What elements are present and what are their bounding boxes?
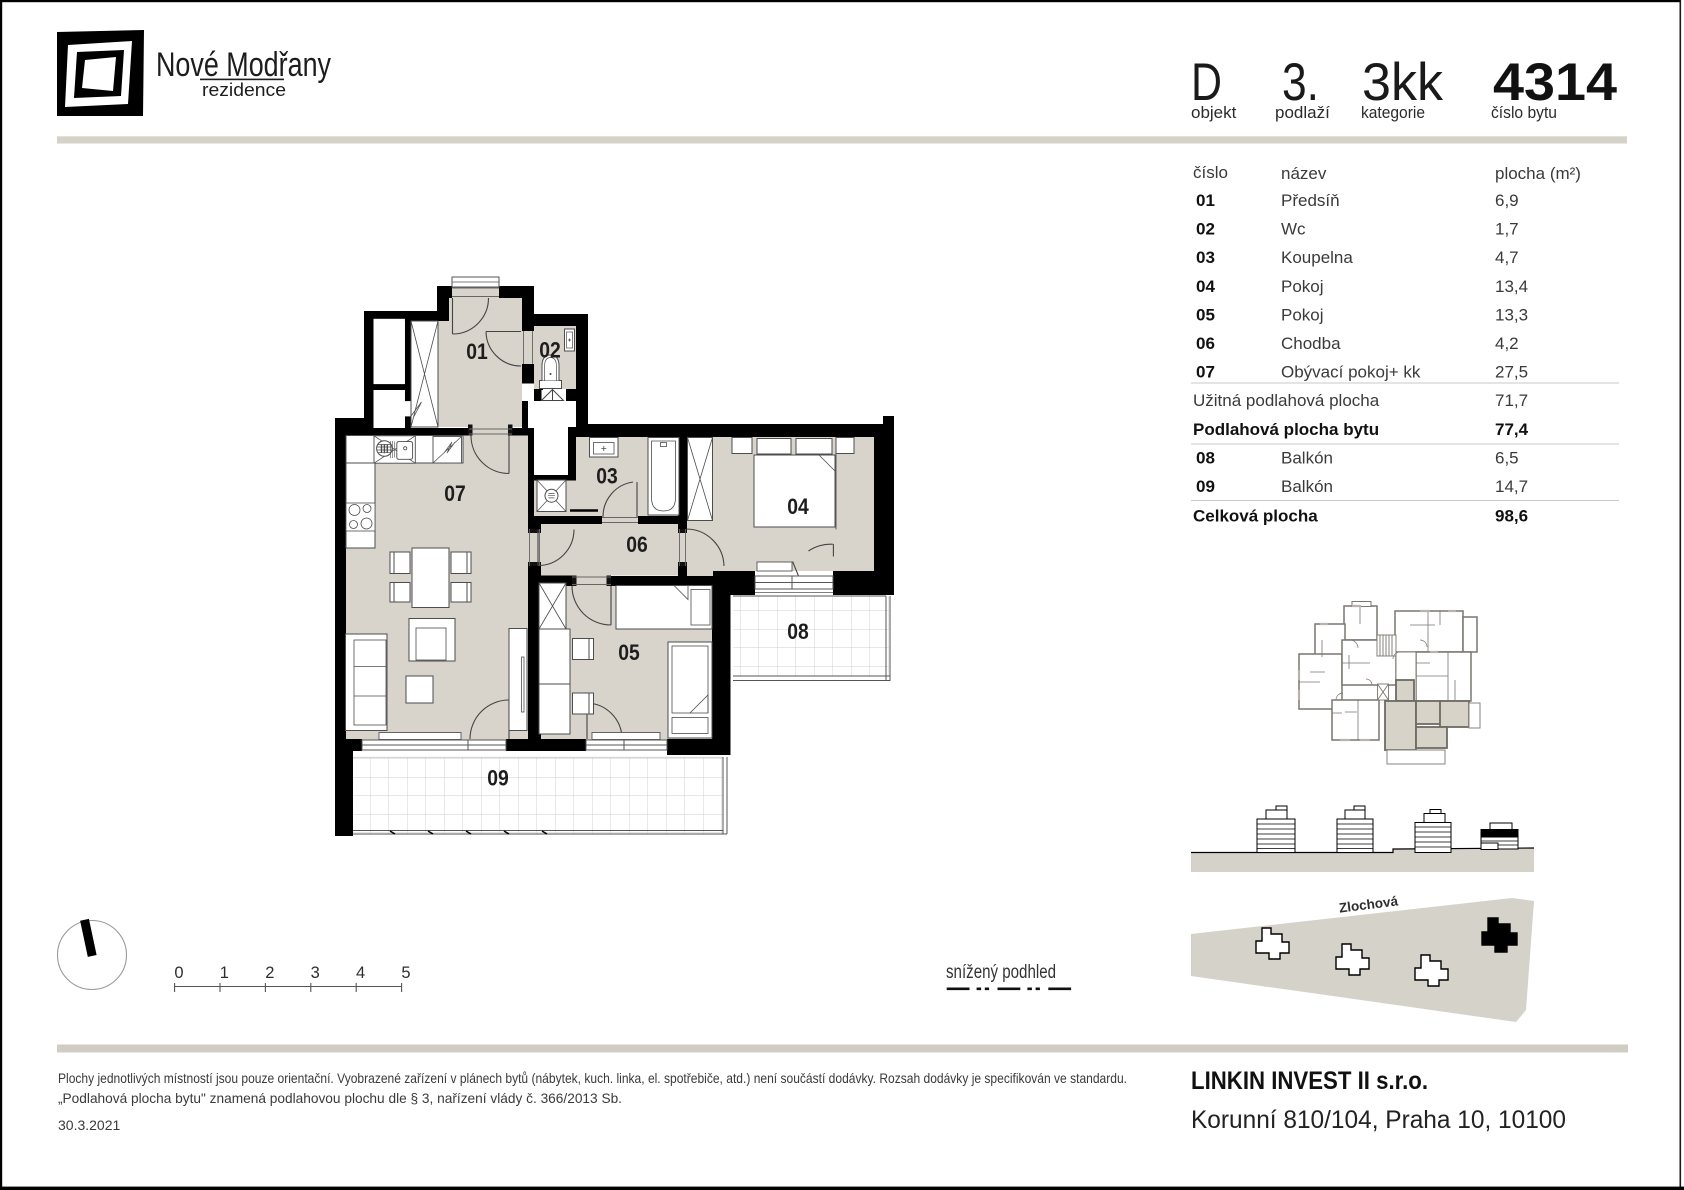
svg-text:04: 04 <box>1196 277 1215 296</box>
svg-text:1: 1 <box>220 964 229 982</box>
svg-text:5: 5 <box>401 964 410 982</box>
svg-text:Wc: Wc <box>1281 220 1306 239</box>
svg-text:„Podlahová plocha bytu" znamen: „Podlahová plocha bytu" znamená podlahov… <box>58 1090 622 1106</box>
svg-text:02: 02 <box>1196 220 1215 239</box>
svg-text:14,7: 14,7 <box>1495 477 1528 496</box>
svg-text:Pokoj: Pokoj <box>1281 277 1324 296</box>
svg-text:07: 07 <box>1196 363 1215 382</box>
svg-text:30.3.2021: 30.3.2021 <box>58 1117 120 1133</box>
svg-text:13,4: 13,4 <box>1495 277 1528 296</box>
svg-text:03: 03 <box>596 464 618 489</box>
svg-text:08: 08 <box>1196 448 1215 467</box>
svg-text:Předsíň: Předsíň <box>1281 191 1340 210</box>
svg-text:05: 05 <box>1196 305 1215 324</box>
svg-text:Pokoj: Pokoj <box>1281 305 1324 324</box>
svg-text:09: 09 <box>487 766 509 791</box>
svg-text:13,3: 13,3 <box>1495 305 1528 324</box>
svg-text:Podlahová plocha bytu: Podlahová plocha bytu <box>1193 420 1379 439</box>
svg-text:Užitná podlahová plocha: Užitná podlahová plocha <box>1193 391 1380 410</box>
svg-text:3: 3 <box>311 964 320 982</box>
svg-text:4: 4 <box>356 964 365 982</box>
svg-text:Chodba: Chodba <box>1281 334 1341 353</box>
svg-text:77,4: 77,4 <box>1495 420 1529 439</box>
svg-text:06: 06 <box>1196 334 1215 353</box>
svg-text:98,6: 98,6 <box>1495 507 1528 526</box>
svg-text:01: 01 <box>1196 191 1215 210</box>
svg-text:04: 04 <box>787 494 809 519</box>
svg-text:0: 0 <box>174 964 183 982</box>
svg-text:6,9: 6,9 <box>1495 191 1519 210</box>
svg-text:2: 2 <box>265 964 274 982</box>
svg-text:06: 06 <box>626 532 648 557</box>
svg-text:Obývací pokoj+ kk: Obývací pokoj+ kk <box>1281 363 1421 382</box>
svg-text:27,5: 27,5 <box>1495 363 1528 382</box>
svg-text:6,5: 6,5 <box>1495 448 1519 467</box>
svg-text:podlaží: podlaží <box>1275 103 1330 122</box>
svg-text:71,7: 71,7 <box>1495 391 1528 410</box>
svg-text:název: název <box>1281 164 1327 183</box>
svg-text:Balkón: Balkón <box>1281 477 1333 496</box>
svg-text:01: 01 <box>466 339 488 364</box>
svg-text:05: 05 <box>618 640 640 665</box>
svg-text:1,7: 1,7 <box>1495 220 1519 239</box>
svg-text:rezidence: rezidence <box>202 80 286 100</box>
svg-text:plocha (m²): plocha (m²) <box>1495 164 1581 183</box>
svg-text:číslo: číslo <box>1193 163 1228 182</box>
svg-text:Plochy jednotlivých místností: Plochy jednotlivých místností jsou pouze… <box>58 1070 1127 1086</box>
svg-text:Koupelna: Koupelna <box>1281 248 1353 267</box>
svg-text:číslo bytu: číslo bytu <box>1491 103 1557 122</box>
svg-text:4,7: 4,7 <box>1495 248 1519 267</box>
svg-text:kategorie: kategorie <box>1361 103 1425 122</box>
svg-text:objekt: objekt <box>1191 103 1237 122</box>
svg-text:07: 07 <box>444 481 466 506</box>
svg-text:Nové Modřany: Nové Modřany <box>156 46 331 84</box>
svg-text:snížený podhled: snížený podhled <box>946 962 1056 983</box>
svg-text:02: 02 <box>539 338 561 363</box>
svg-text:08: 08 <box>787 619 809 644</box>
svg-text:03: 03 <box>1196 248 1215 267</box>
svg-text:LINKIN INVEST II s.r.o.: LINKIN INVEST II s.r.o. <box>1191 1067 1428 1095</box>
svg-text:Balkón: Balkón <box>1281 448 1333 467</box>
svg-text:09: 09 <box>1196 477 1215 496</box>
svg-text:Celková plocha: Celková plocha <box>1193 507 1318 526</box>
svg-text:Korunní 810/104, Praha 10, 101: Korunní 810/104, Praha 10, 10100 <box>1191 1106 1566 1134</box>
svg-text:4,2: 4,2 <box>1495 334 1519 353</box>
